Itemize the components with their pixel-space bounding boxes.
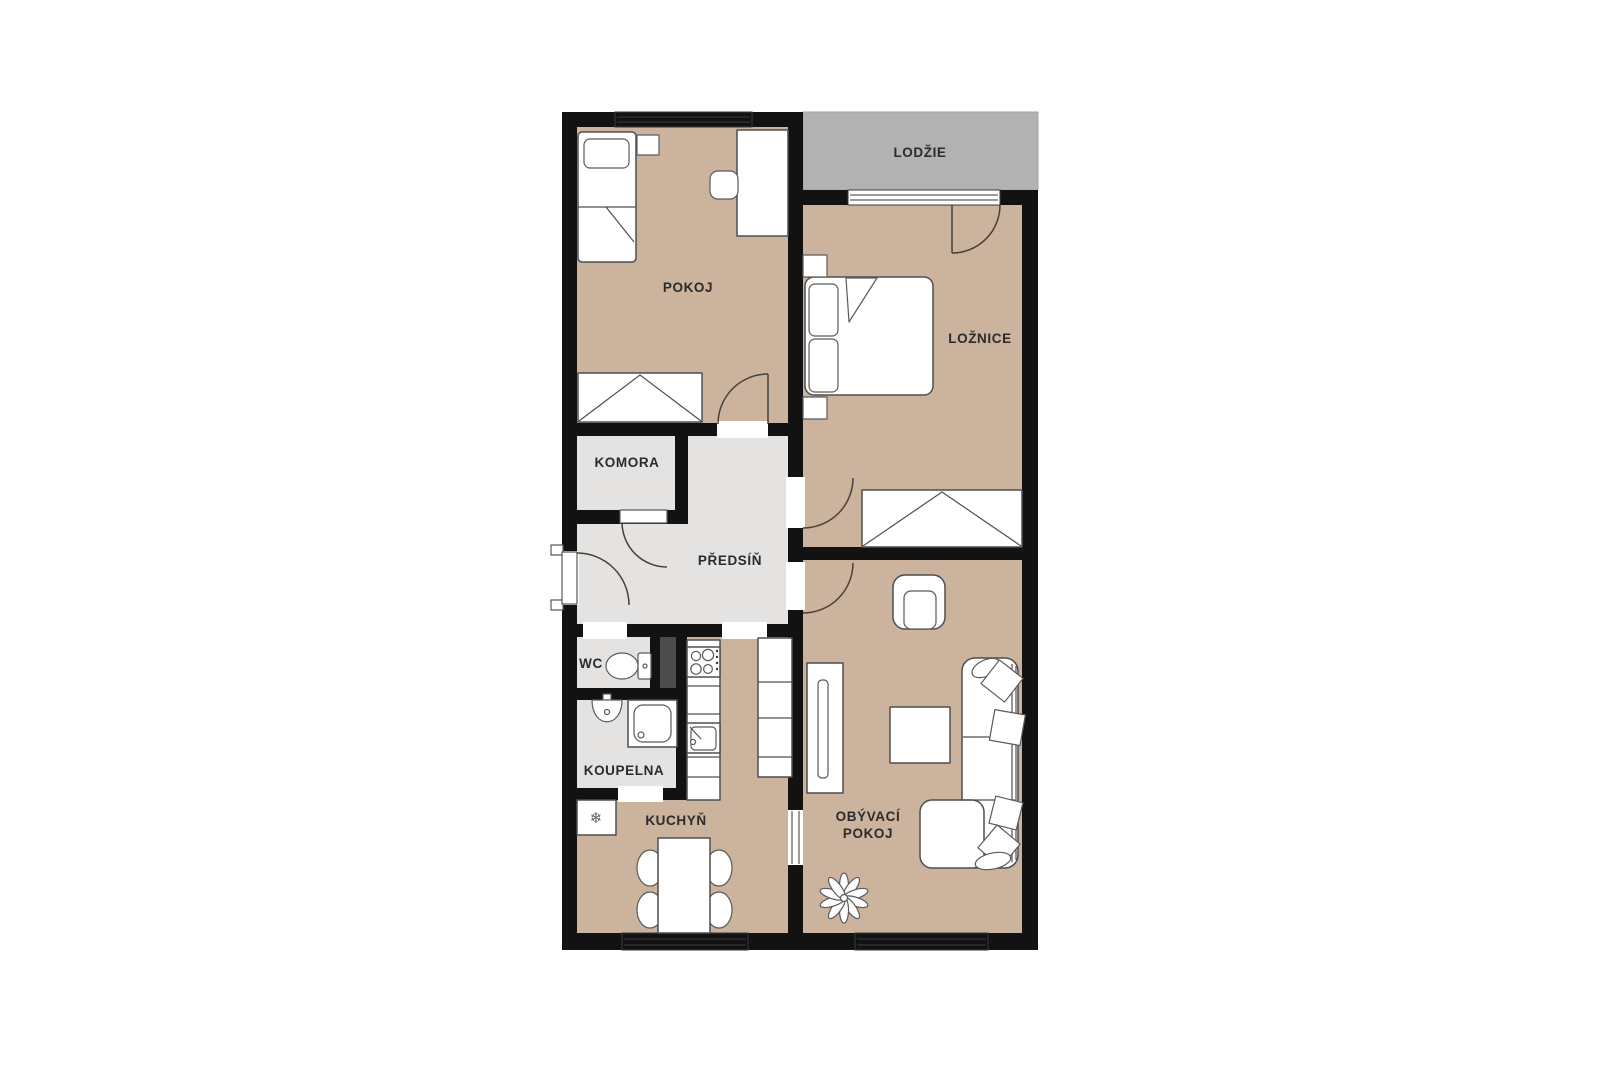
entry-door-jamb-top	[551, 545, 563, 555]
fridge-snowflake-icon: ❄	[590, 809, 603, 827]
desk	[737, 130, 788, 236]
wall-wc-bottom	[562, 688, 687, 700]
sofa-chaise	[920, 800, 984, 868]
desk-chair	[710, 171, 738, 199]
wardrobe	[862, 490, 1022, 547]
komora-floor	[577, 436, 675, 512]
label-wc: WC	[579, 656, 603, 671]
wall-bottom	[562, 933, 1038, 950]
shower	[628, 700, 677, 747]
stove	[687, 647, 720, 677]
label-lodzie: LODŽIE	[893, 145, 946, 160]
dining-table	[658, 838, 710, 933]
label-obyvaci-line1: OBÝVACÍ	[836, 809, 901, 824]
wall-loznice-obyvaci	[803, 547, 1022, 560]
bed-pillow-top	[809, 284, 838, 336]
entry-door-leaf	[562, 552, 577, 604]
armchair	[893, 575, 945, 629]
koupelna-door-threshold	[618, 786, 663, 802]
nightstand-top	[803, 255, 827, 277]
entry-door-jamb-bottom	[551, 600, 563, 610]
wall-top	[562, 112, 803, 127]
predsin-floor-lower	[577, 524, 788, 624]
toilet	[606, 653, 651, 679]
wardrobe	[578, 373, 702, 422]
label-obyvaci-line2: POKOJ	[843, 826, 893, 841]
label-kuchyn: KUCHYŇ	[645, 813, 706, 828]
tv-cabinet	[807, 663, 843, 793]
label-pokoj: POKOJ	[663, 280, 713, 295]
bed-pillow	[584, 139, 629, 168]
shaft	[660, 637, 676, 688]
pokoj-door-threshold	[717, 421, 768, 438]
nightstand-bottom	[803, 397, 827, 419]
wall-loggia-band-right	[1000, 190, 1038, 205]
fridge: ❄	[577, 800, 616, 835]
wall-left	[562, 112, 577, 950]
wc-door-threshold	[583, 622, 627, 639]
wall-komora-right	[675, 423, 688, 524]
label-predsin: PŘEDSÍŇ	[698, 553, 762, 568]
bed-pillow-bottom	[809, 339, 838, 392]
sofa-pillow	[989, 710, 1025, 746]
wall-loggia-band-left	[803, 190, 848, 205]
label-loznice: LOŽNICE	[948, 331, 1011, 346]
dining-set	[637, 838, 732, 933]
floorplan-page: ❄	[0, 0, 1600, 1066]
tv	[818, 680, 828, 778]
kitchen-sink	[687, 723, 720, 753]
loznice-door-threshold	[786, 477, 805, 528]
label-koupelna: KOUPELNA	[584, 763, 665, 778]
komora-door-threshold	[620, 510, 667, 523]
obyvaci-door-threshold	[786, 562, 805, 610]
sofa-pillow	[989, 796, 1023, 830]
kitchen-cabinets-right	[758, 638, 792, 777]
kitchen-hatch	[788, 810, 803, 865]
nightstand	[637, 135, 659, 155]
predsin-floor-upper	[688, 436, 788, 524]
single-bed	[578, 132, 636, 262]
floorplan-canvas: ❄	[0, 0, 1600, 1066]
double-bed	[805, 277, 933, 395]
wall-right	[1022, 190, 1038, 950]
coffee-table	[890, 707, 950, 763]
label-komora: KOMORA	[594, 455, 659, 470]
kuchyn-entry-threshold	[722, 622, 767, 639]
loznice-balcony-window	[848, 190, 1000, 205]
